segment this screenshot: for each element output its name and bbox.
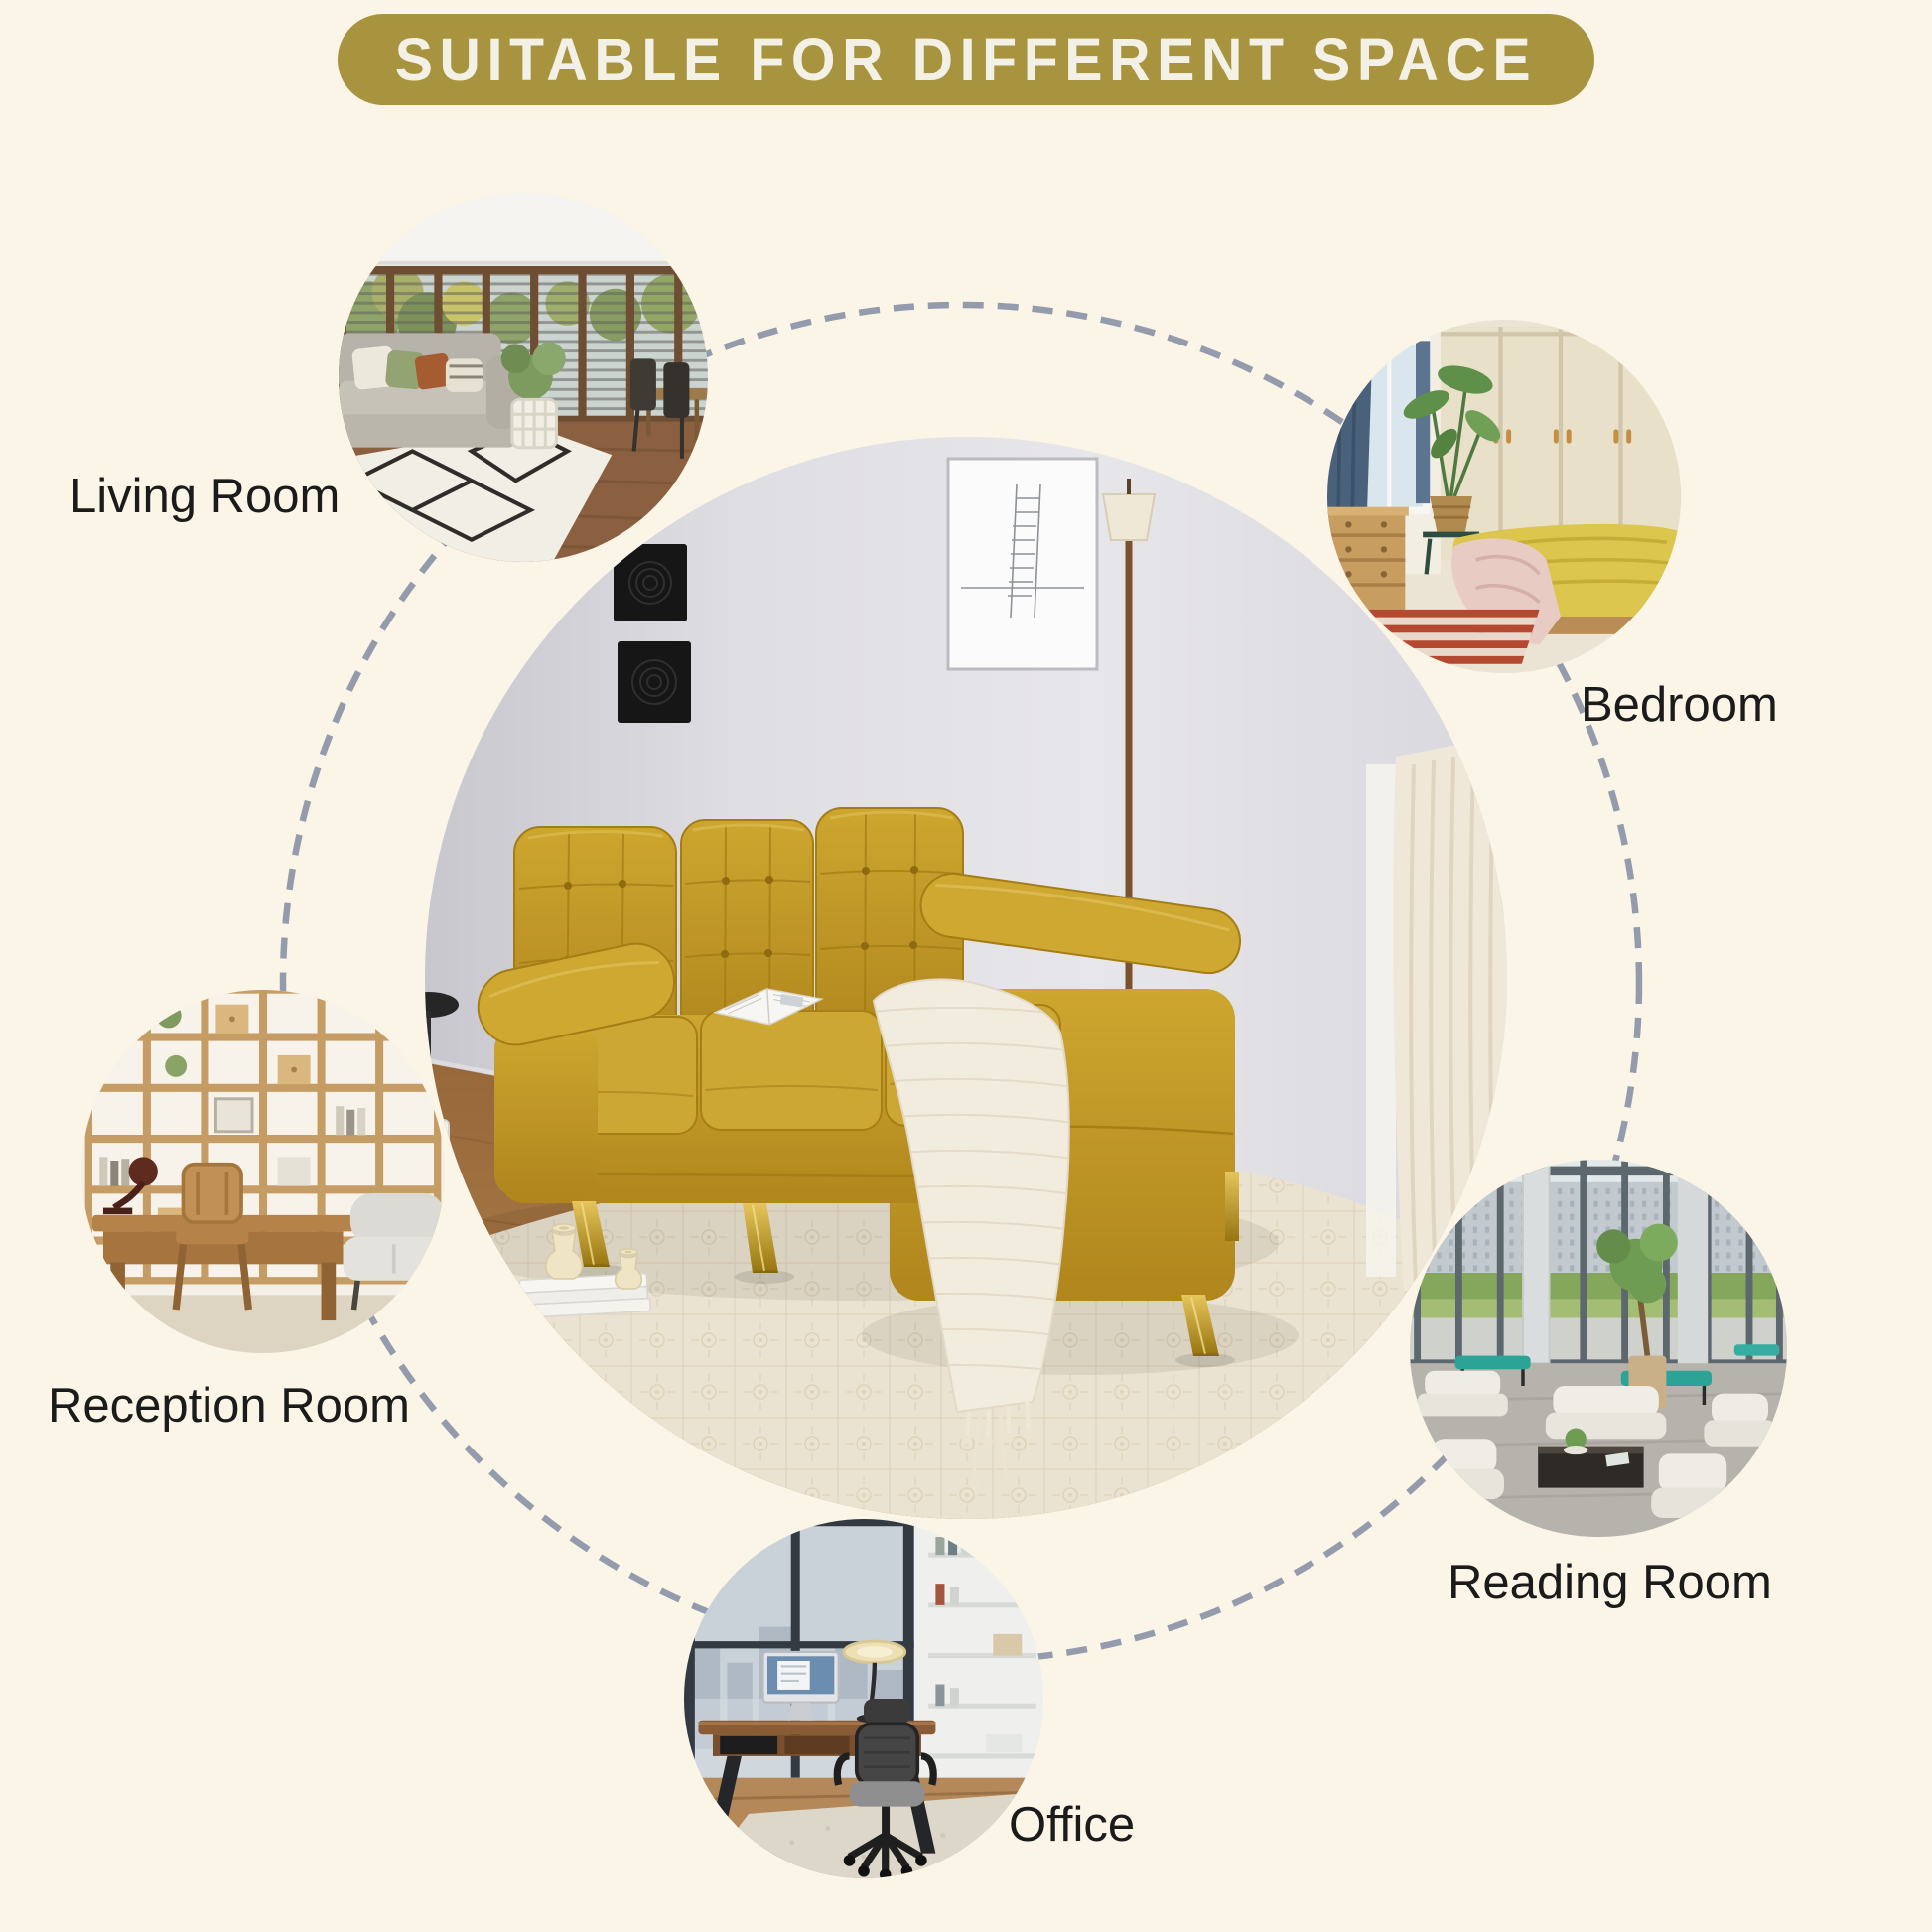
product-infographic: SUITABLE FOR DIFFERENT SPACE bbox=[0, 0, 1932, 1932]
reading-room-illustration bbox=[1410, 1160, 1787, 1537]
title-banner: SUITABLE FOR DIFFERENT SPACE bbox=[338, 14, 1594, 105]
gray-sofa bbox=[339, 333, 519, 447]
living-room-label: Living Room bbox=[69, 469, 340, 524]
reading-room-label: Reading Room bbox=[1448, 1555, 1772, 1610]
reception-room-photo bbox=[81, 990, 445, 1353]
wall-picture-frame bbox=[948, 459, 1097, 669]
reception-room-illustration bbox=[81, 990, 445, 1353]
bedroom-photo bbox=[1327, 320, 1681, 673]
center-product-photo bbox=[425, 437, 1507, 1519]
living-room-photo bbox=[339, 193, 708, 562]
center-scene-illustration bbox=[425, 437, 1507, 1519]
living-room-illustration bbox=[339, 193, 708, 562]
office-illustration bbox=[684, 1519, 1043, 1878]
office-photo bbox=[684, 1519, 1043, 1878]
title-text: SUITABLE FOR DIFFERENT SPACE bbox=[395, 25, 1538, 94]
bedroom-illustration bbox=[1327, 320, 1681, 673]
reading-room-photo bbox=[1410, 1160, 1787, 1537]
office-label: Office bbox=[1009, 1797, 1135, 1853]
reception-room-label: Reception Room bbox=[48, 1378, 410, 1434]
bedroom-label: Bedroom bbox=[1581, 677, 1778, 733]
